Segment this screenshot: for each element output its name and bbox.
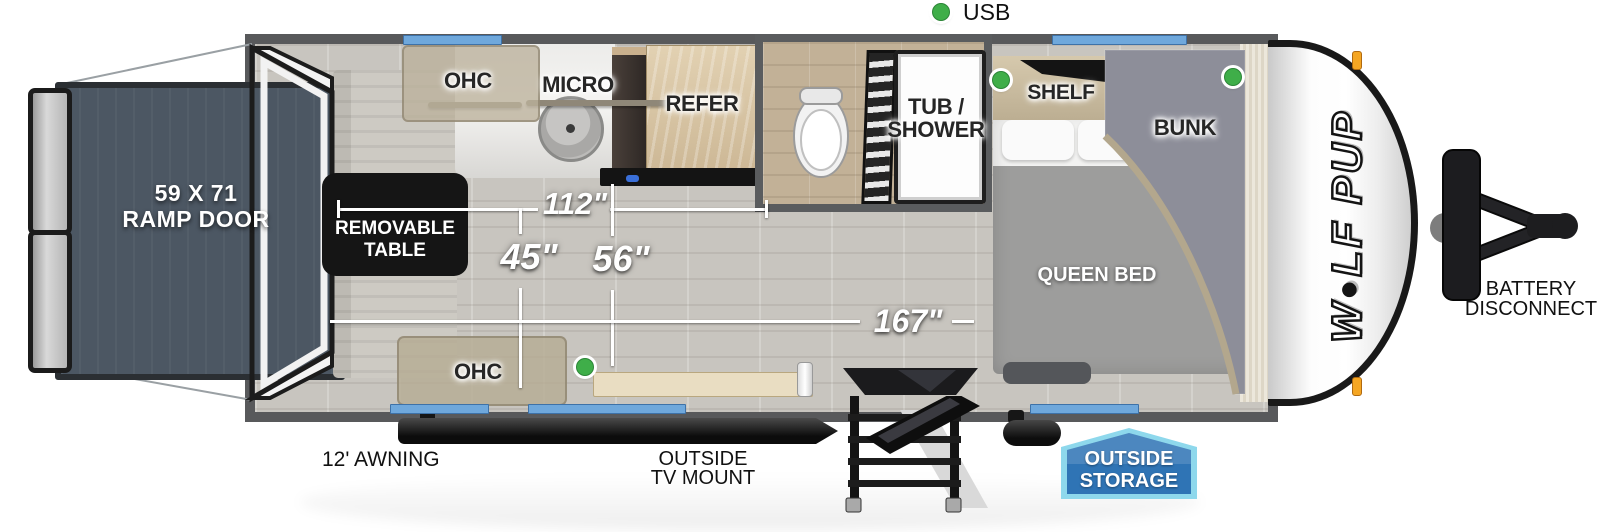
clearance-light	[1352, 377, 1362, 396]
rear-bumper-bottom	[28, 230, 72, 373]
ramp-door-label: 59 X 71 RAMP DOOR	[96, 180, 296, 232]
dim-line-167	[952, 320, 974, 323]
window	[1030, 404, 1139, 414]
dim-tick	[337, 200, 340, 218]
queen-bed-label: QUEEN BED	[1022, 264, 1172, 287]
dim-label-167: 167"	[864, 303, 952, 340]
dim-line-112	[610, 208, 768, 211]
dim-label-112: 112"	[538, 186, 612, 222]
water-valve	[626, 175, 639, 182]
dim-line-45	[519, 208, 522, 234]
outside-tv-mount-line2: TV MOUNT	[651, 469, 755, 488]
usb-indicator-dot	[1224, 68, 1242, 86]
counter-edge-bar	[526, 100, 672, 106]
lamp	[797, 362, 813, 397]
refer-label: REFER	[652, 91, 752, 117]
entry-steps	[838, 396, 998, 522]
usb-legend-dot-icon	[932, 3, 950, 21]
rear-bumper-top	[28, 88, 72, 235]
window	[1052, 35, 1187, 45]
ramp-door-size: 59 X 71	[155, 180, 238, 206]
awning-tube-right	[1003, 420, 1061, 446]
brand-logo: W●LF PUP	[1319, 91, 1375, 361]
ohc-top-label: OHC	[418, 68, 518, 94]
clearance-light	[1352, 51, 1362, 70]
awning-label: 12' AWNING	[322, 448, 522, 472]
toilet	[792, 86, 850, 178]
range-stove	[612, 47, 646, 171]
removable-table-label-line1: REMOVABLE	[335, 218, 455, 240]
outside-tv-mount-label: OUTSIDE TV MOUNT	[628, 450, 778, 488]
battery-disconnect-label: BATTERY DISCONNECT	[1440, 279, 1600, 319]
window	[403, 35, 502, 45]
usb-indicator-dot	[576, 358, 594, 376]
ramp-door-text: RAMP DOOR	[122, 206, 269, 232]
brand-first-letter: W	[1323, 300, 1370, 343]
removable-table: REMOVABLE TABLE	[322, 173, 468, 276]
outside-storage-line2: STORAGE	[1080, 470, 1179, 492]
removable-table-label-line2: TABLE	[364, 240, 426, 262]
dim-line-112	[337, 208, 538, 211]
dim-line-167	[330, 320, 860, 323]
bunk	[1100, 44, 1245, 396]
window	[528, 404, 686, 414]
bunk-label: BUNK	[1135, 115, 1235, 141]
shelf-label: SHELF	[1011, 81, 1111, 105]
usb-legend-label: USB	[963, 0, 1010, 26]
dim-line-45	[519, 288, 522, 388]
awning-tube	[398, 418, 838, 444]
entry-door	[838, 364, 984, 398]
window	[390, 404, 489, 414]
tub-shower-label-line1: TUB /	[908, 95, 964, 118]
micro-label: MICRO	[528, 72, 628, 98]
galley-base-trim	[600, 168, 762, 186]
pillow	[1002, 120, 1074, 160]
sink-drain	[566, 124, 575, 133]
tub-shower-label-line2: SHOWER	[887, 118, 984, 141]
ohc-bottom-label: OHC	[428, 359, 528, 385]
brand-rest: LF PUP	[1323, 109, 1370, 276]
tv-mount-bench	[593, 372, 813, 397]
dim-line-56	[611, 290, 614, 366]
floorplan-canvas: 59 X 71 RAMP DOOR TUB / SHOWER	[0, 0, 1600, 532]
dim-label-45: 45"	[494, 236, 564, 278]
outside-storage-label: OUTSIDE STORAGE	[1058, 448, 1200, 492]
outside-storage-line1: OUTSIDE	[1085, 448, 1174, 470]
nightstand	[1003, 362, 1091, 384]
battery-disconnect-line2: DISCONNECT	[1465, 299, 1597, 319]
dim-tick	[765, 200, 768, 218]
tub-shower-label: TUB / SHOWER	[876, 95, 996, 141]
dim-label-56: 56"	[586, 238, 656, 280]
brand-text: W●LF PUP	[1323, 109, 1371, 343]
battery-disconnect-line1: BATTERY	[1486, 279, 1576, 299]
paw-icon: ●	[1329, 277, 1367, 301]
usb-indicator-dot	[992, 71, 1010, 89]
